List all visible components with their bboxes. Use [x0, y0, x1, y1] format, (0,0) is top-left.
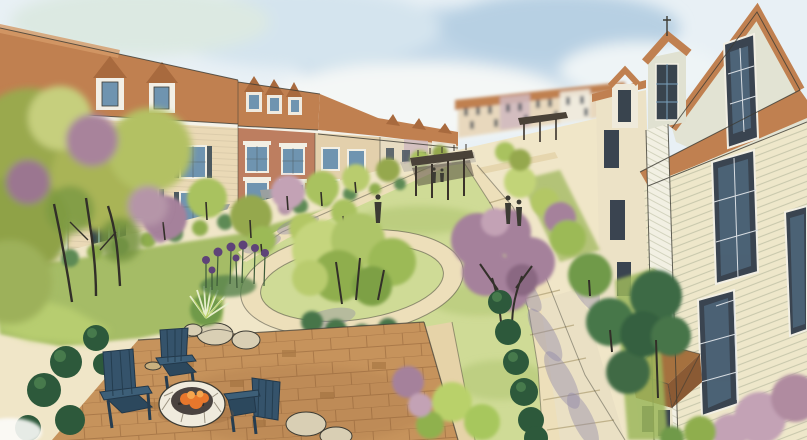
rendering-canvas	[0, 0, 807, 440]
dormer-window	[291, 100, 299, 112]
dormer-window	[154, 87, 169, 109]
small-dormer-window	[618, 90, 631, 122]
pedestrian	[432, 167, 436, 183]
dormer-window	[270, 98, 279, 111]
watercolor-rendering: Hand-drawn watercolor and ink architectu…	[0, 0, 807, 440]
dormer-window	[249, 95, 259, 109]
pedestrian	[440, 169, 444, 183]
plum-shrub	[408, 393, 432, 417]
distant-facade-mauve	[500, 94, 530, 130]
dormer-window	[102, 82, 118, 106]
